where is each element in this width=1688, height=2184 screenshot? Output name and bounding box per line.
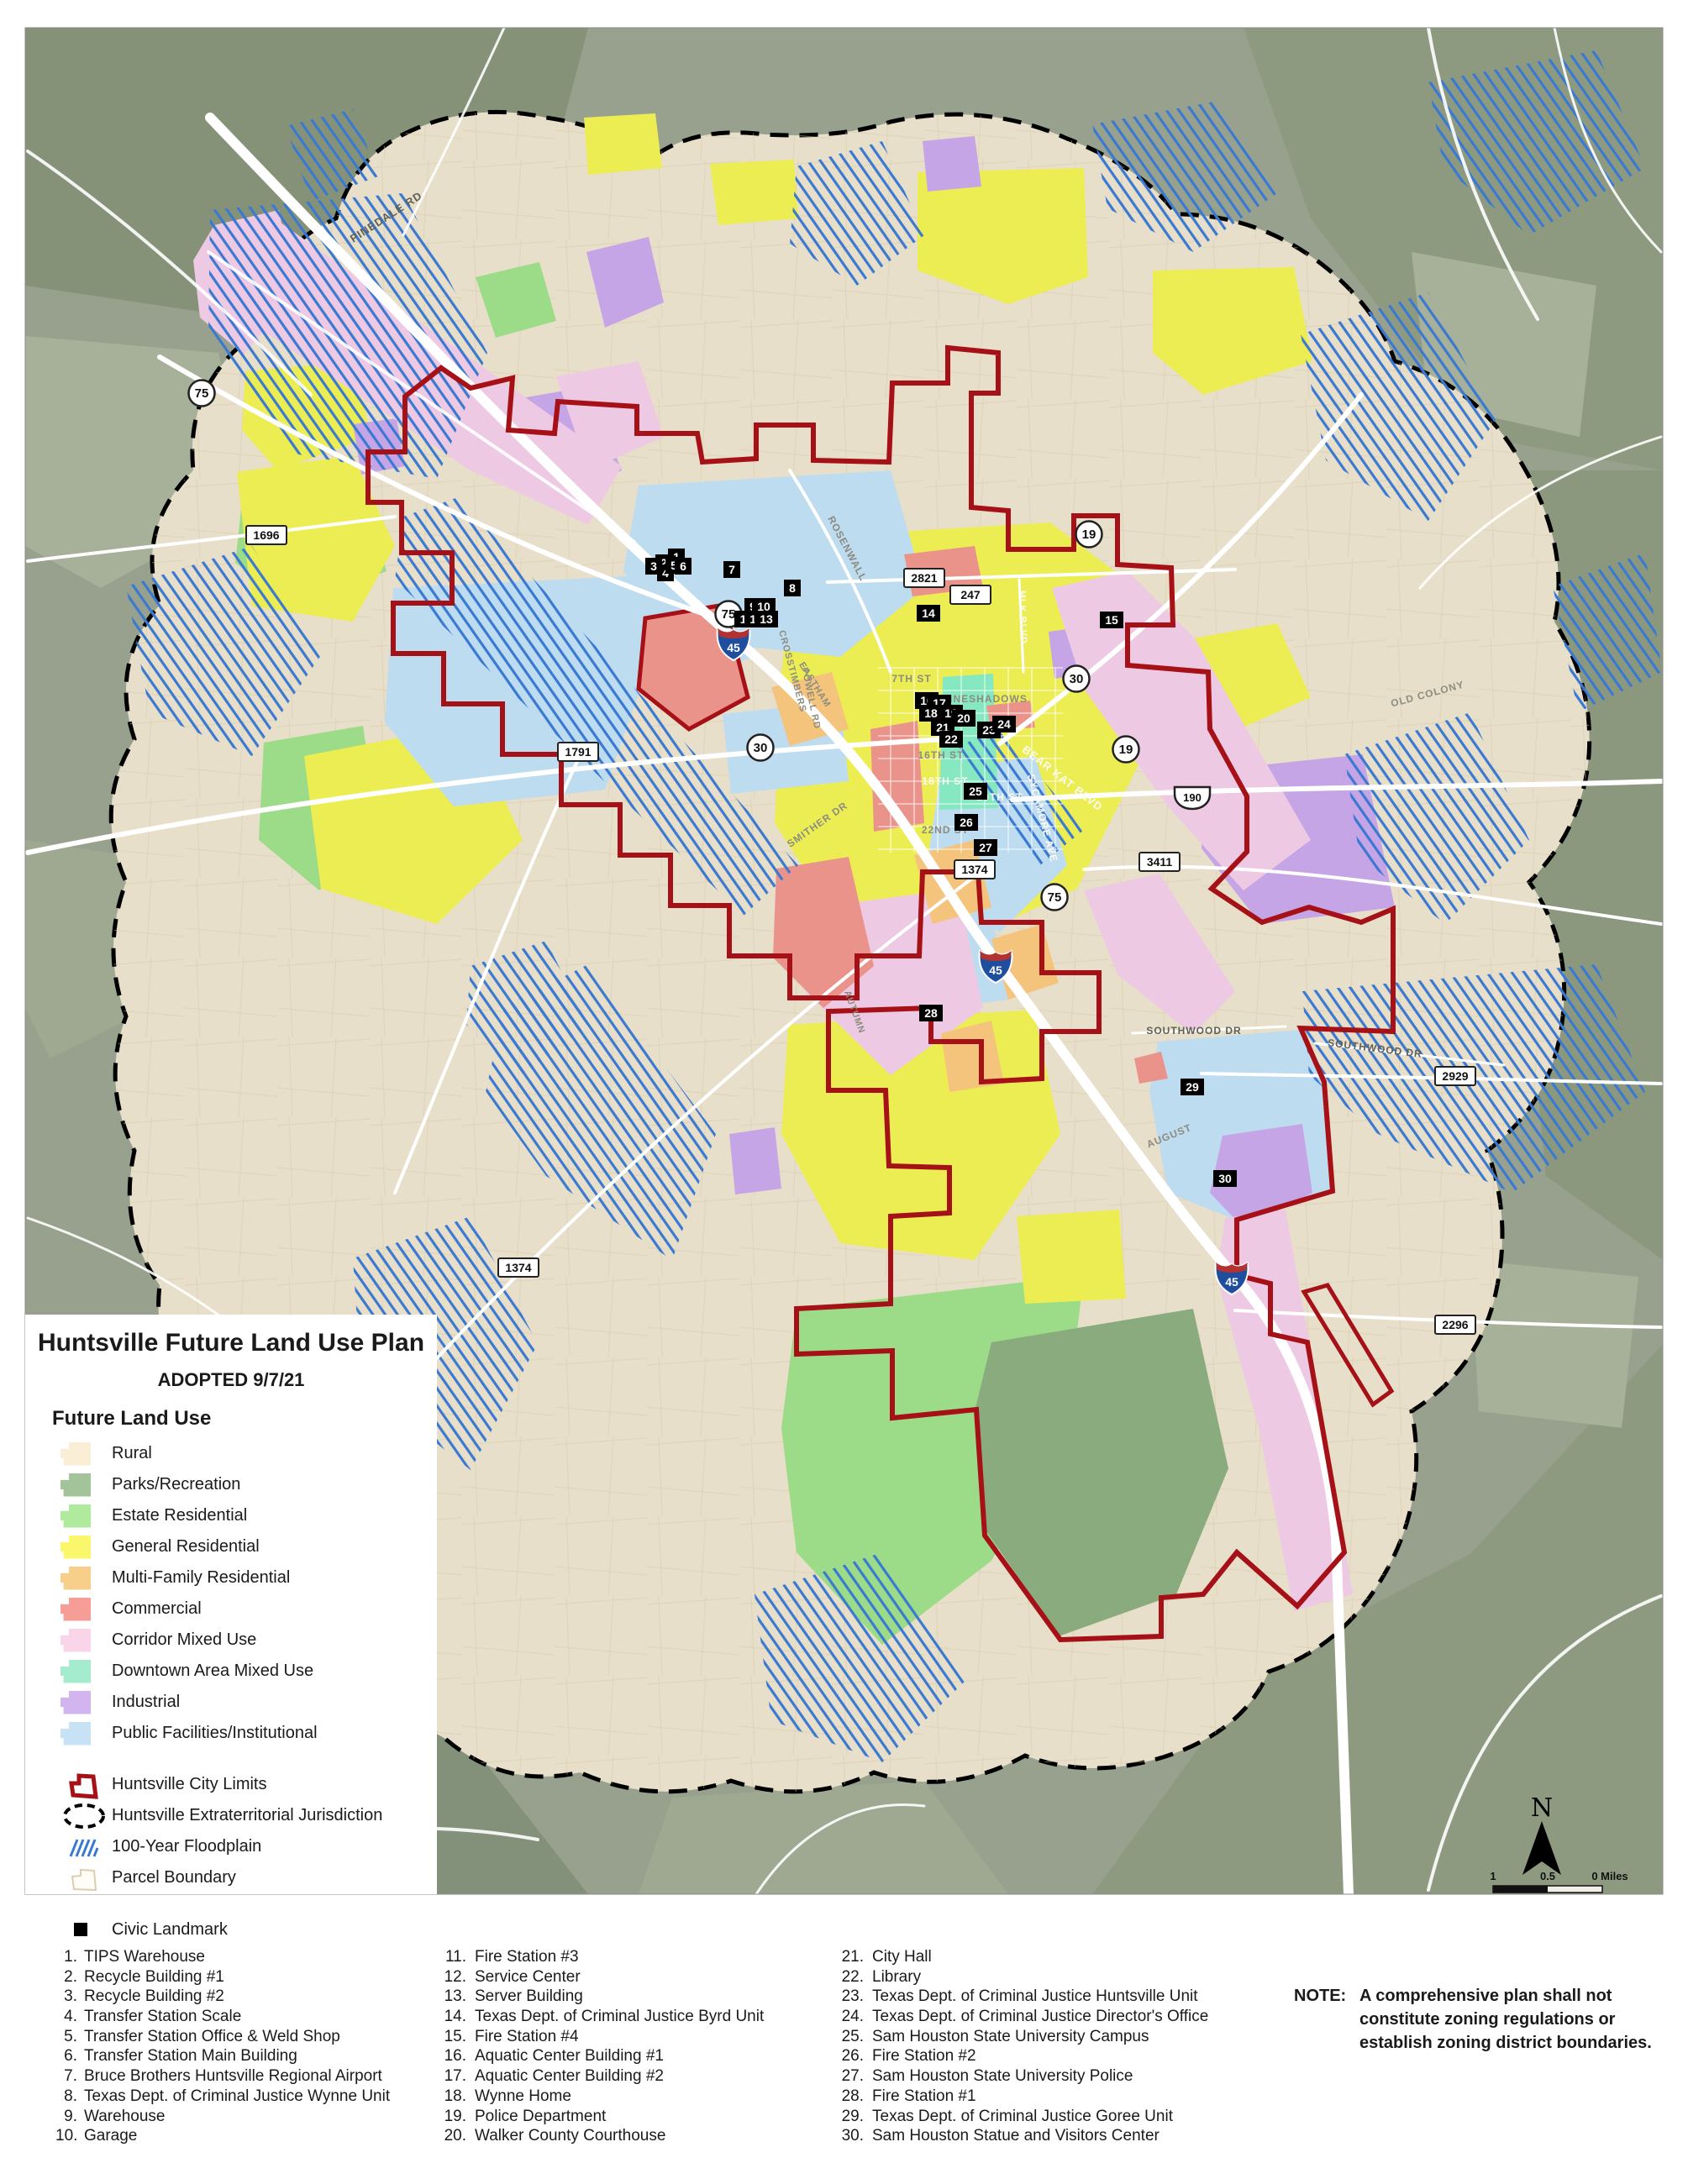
land-use-swatch	[60, 1567, 91, 1590]
map-marker-29: 29	[1181, 1079, 1204, 1095]
legend-item: Commercial	[25, 1593, 429, 1625]
landmark-list-item: 9.Warehouse	[55, 2107, 390, 2127]
land-use-swatch	[60, 1722, 91, 1746]
landmark-list-column-1: 1.TIPS Warehouse2.Recycle Building #13.R…	[55, 1947, 390, 2146]
svg-text:30: 30	[1218, 1172, 1232, 1185]
land-use-label: Industrial	[112, 1693, 180, 1712]
scale-label-0-miles: 0 Miles	[1591, 1870, 1628, 1882]
map-marker-27: 27	[974, 839, 997, 856]
landmark-list-item: 5.Transfer Station Office & Weld Shop	[55, 2027, 390, 2047]
landmark-label: Aquatic Center Building #2	[475, 2066, 664, 2087]
landmark-number: 20.	[441, 2126, 466, 2146]
landmark-label: Garage	[84, 2126, 137, 2146]
floodplain-icon	[55, 1835, 112, 1860]
landmark-number: 18.	[441, 2087, 466, 2107]
landmark-label: Police Department	[475, 2107, 606, 2127]
landmark-number: 24.	[839, 2007, 864, 2027]
civic-landmark-icon	[74, 1923, 87, 1936]
city-limits-icon	[55, 1769, 112, 1801]
svg-text:45: 45	[1225, 1275, 1238, 1289]
svg-text:24: 24	[997, 717, 1011, 731]
map-marker-13: 13	[755, 611, 778, 627]
landmark-list-item: 12.Service Center	[441, 1967, 764, 1987]
land-use-label: Corridor Mixed Use	[112, 1630, 256, 1650]
highway-shield-19: 19	[1113, 737, 1139, 763]
landmark-label: Texas Dept. of Criminal Justice Goree Un…	[872, 2107, 1173, 2127]
landmark-label: Warehouse	[84, 2107, 165, 2127]
landmark-label: Recycle Building #1	[84, 1967, 224, 1987]
landmark-label: Fire Station #3	[475, 1947, 579, 1967]
landmark-label: Transfer Station Office & Weld Shop	[84, 2027, 340, 2047]
landmark-list-column-3: 21.City Hall22.Library23.Texas Dept. of …	[839, 1947, 1208, 2146]
highway-shield-3411: 3411	[1139, 853, 1180, 871]
landmark-label: Texas Dept. of Criminal Justice Wynne Un…	[84, 2087, 390, 2107]
legend-floodplain: 100-Year Floodplain	[25, 1831, 429, 1862]
svg-text:1696: 1696	[253, 528, 279, 542]
landmark-number: 17.	[441, 2066, 466, 2087]
landmark-number: 1.	[55, 1947, 77, 1967]
landmark-label: Server Building	[475, 1987, 583, 2007]
legend-item: General Residential	[25, 1531, 429, 1562]
boundary-legend: Huntsville City Limits Huntsville Extrat…	[25, 1769, 429, 1893]
landmark-label: Wynne Home	[475, 2087, 571, 2107]
landmark-list-item: 15.Fire Station #4	[441, 2027, 764, 2047]
svg-text:13: 13	[760, 612, 773, 626]
highway-shield-1374: 1374	[498, 1258, 539, 1277]
parcel-boundary-label: Parcel Boundary	[112, 1868, 236, 1887]
landmark-list-column-2: 11.Fire Station #312.Service Center13.Se…	[441, 1947, 764, 2146]
note-prefix: NOTE:	[1294, 1984, 1359, 2055]
svg-text:14: 14	[922, 606, 935, 620]
landmark-number: 9.	[55, 2107, 77, 2127]
landmark-number: 11.	[441, 1947, 466, 1967]
landmark-number: 29.	[839, 2107, 864, 2127]
svg-text:75: 75	[722, 607, 736, 622]
svg-text:190: 190	[1183, 791, 1202, 804]
landmark-list-item: 26.Fire Station #2	[839, 2046, 1208, 2066]
north-label: N	[1531, 1793, 1553, 1823]
street-label: 7TH ST	[891, 673, 931, 685]
svg-text:2296: 2296	[1442, 1318, 1468, 1331]
svg-text:247: 247	[960, 588, 981, 601]
svg-text:1374: 1374	[505, 1261, 531, 1274]
land-use-label: Rural	[112, 1444, 152, 1463]
street-label: MLK BLVD	[1017, 591, 1028, 644]
land-use-label: Public Facilities/Institutional	[112, 1724, 318, 1743]
legend-item: Corridor Mixed Use	[25, 1625, 429, 1656]
landmark-list-item: 14.Texas Dept. of Criminal Justice Byrd …	[441, 2007, 764, 2027]
landmark-number: 16.	[441, 2046, 466, 2066]
huntsville-land-use-map-page: { "title": "Huntsville Future Land Use P…	[0, 0, 1688, 2184]
map-marker-8: 8	[784, 580, 801, 596]
land-use-label: General Residential	[112, 1537, 260, 1557]
map-marker-6: 6	[675, 558, 692, 575]
map-marker-14: 14	[917, 605, 940, 622]
highway-shield-30: 30	[1064, 666, 1090, 692]
land-use-label: Commercial	[112, 1599, 202, 1619]
legend-item: Public Facilities/Institutional	[25, 1718, 429, 1749]
landmark-list-item: 19.Police Department	[441, 2107, 764, 2127]
svg-text:19: 19	[1082, 528, 1096, 542]
landmark-list-item: 24.Texas Dept. of Criminal Justice Direc…	[839, 2007, 1208, 2027]
landmark-label: Transfer Station Scale	[84, 2007, 241, 2027]
landmark-list-item: 28.Fire Station #1	[839, 2087, 1208, 2107]
note: NOTE: A comprehensive plan shall not con…	[1294, 1984, 1652, 2055]
landmark-number: 23.	[839, 1987, 864, 2007]
land-use-label: Downtown Area Mixed Use	[112, 1662, 313, 1681]
landmark-label: City Hall	[872, 1947, 932, 1967]
highway-shield-19: 19	[1076, 522, 1102, 548]
land-use-swatch	[60, 1691, 91, 1714]
landmark-number: 27.	[839, 2066, 864, 2087]
landmark-number: 25.	[839, 2027, 864, 2047]
svg-text:3: 3	[650, 559, 657, 573]
scale-label-05: 0.5	[1540, 1870, 1555, 1882]
landmark-number: 14.	[441, 2007, 466, 2027]
highway-shield-247: 247	[950, 585, 991, 604]
landmark-list-item: 6.Transfer Station Main Building	[55, 2046, 390, 2066]
scale-label-1: 1	[1490, 1870, 1496, 1882]
landmark-list-item: 1.TIPS Warehouse	[55, 1947, 390, 1967]
adopted-date: ADOPTED 9/7/21	[25, 1369, 437, 1391]
landmark-list-item: 21.City Hall	[839, 1947, 1208, 1967]
landmark-label: Fire Station #4	[475, 2027, 579, 2047]
map-marker-30: 30	[1213, 1170, 1237, 1187]
landmark-list-item: 27.Sam Houston State University Police	[839, 2066, 1208, 2087]
land-use-legend-header: Future Land Use	[52, 1407, 211, 1431]
landmark-label: Transfer Station Main Building	[84, 2046, 297, 2066]
svg-text:18: 18	[924, 706, 938, 720]
svg-text:2821: 2821	[911, 571, 937, 585]
svg-text:1374: 1374	[961, 863, 987, 876]
landmark-list-item: 3.Recycle Building #2	[55, 1987, 390, 2007]
landmark-number: 30.	[839, 2126, 864, 2146]
svg-text:2929: 2929	[1442, 1069, 1468, 1083]
land-use-swatch	[60, 1598, 91, 1621]
landmark-label: Texas Dept. of Criminal Justice Director…	[872, 2007, 1208, 2027]
landmark-label: Walker County Courthouse	[475, 2126, 665, 2146]
svg-text:19: 19	[1119, 743, 1133, 757]
svg-text:30: 30	[754, 741, 768, 755]
land-use-label: Multi-Family Residential	[112, 1568, 290, 1588]
svg-text:1791: 1791	[565, 745, 591, 759]
landmark-list-item: 20.Walker County Courthouse	[441, 2126, 764, 2146]
landmark-number: 22.	[839, 1967, 864, 1987]
landmark-list-item: 7.Bruce Brothers Huntsville Regional Air…	[55, 2066, 390, 2087]
highway-shield-30: 30	[748, 735, 774, 761]
landmark-list-item: 10.Garage	[55, 2126, 390, 2146]
svg-text:45: 45	[727, 641, 740, 654]
street-label: 18TH ST	[922, 775, 968, 787]
landmark-label: Bruce Brothers Huntsville Regional Airpo…	[84, 2066, 382, 2087]
landmark-label: Sam Houston State University Police	[872, 2066, 1133, 2087]
land-use-list: RuralParks/RecreationEstate ResidentialG…	[25, 1438, 429, 1749]
landmark-label: Texas Dept. of Criminal Justice Huntsvil…	[872, 1987, 1198, 2007]
note-text: A comprehensive plan shall not constitut…	[1359, 1984, 1652, 2055]
highway-shield-190: 190	[1175, 787, 1210, 809]
svg-text:29: 29	[1186, 1080, 1199, 1094]
land-use-label: Parks/Recreation	[112, 1475, 240, 1494]
landmark-number: 28.	[839, 2087, 864, 2107]
map-marker-15: 15	[1100, 612, 1123, 628]
map-marker-25: 25	[964, 783, 987, 800]
landmark-list-item: 13.Server Building	[441, 1987, 764, 2007]
street-label: 16TH ST	[918, 749, 964, 761]
landmark-list-item: 30.Sam Houston Statue and Visitors Cente…	[839, 2126, 1208, 2146]
landmark-number: 4.	[55, 2007, 77, 2027]
landmark-label: Fire Station #1	[872, 2087, 976, 2107]
map-marker-20: 20	[952, 710, 975, 727]
landmark-list-item: 8.Texas Dept. of Criminal Justice Wynne …	[55, 2087, 390, 2107]
legend-parcel-boundary: Parcel Boundary	[25, 1862, 429, 1893]
landmark-list-item: 16.Aquatic Center Building #1	[441, 2046, 764, 2066]
landmark-number: 21.	[839, 1947, 864, 1967]
highway-shield-2296: 2296	[1435, 1315, 1475, 1334]
land-use-swatch	[60, 1660, 91, 1683]
legend-item: Downtown Area Mixed Use	[25, 1656, 429, 1687]
landmark-number: 5.	[55, 2027, 77, 2047]
landmark-label: Library	[872, 1967, 921, 1987]
landmark-list-item: 11.Fire Station #3	[441, 1947, 764, 1967]
highway-shield-1374: 1374	[954, 860, 995, 879]
map-marker-24: 24	[992, 716, 1016, 732]
highway-shield-1791: 1791	[558, 743, 598, 761]
landmark-list-item: 22.Library	[839, 1967, 1208, 1987]
svg-text:30: 30	[1070, 672, 1084, 686]
land-use-swatch	[60, 1473, 91, 1497]
landmark-list-item: 18.Wynne Home	[441, 2087, 764, 2107]
map-marker-28: 28	[919, 1005, 943, 1021]
svg-text:26: 26	[960, 816, 973, 829]
svg-text:6: 6	[680, 559, 686, 573]
highway-shield-1696: 1696	[246, 526, 287, 544]
landmark-number: 3.	[55, 1987, 77, 2007]
svg-text:3411: 3411	[1147, 855, 1173, 869]
landmark-list-item: 17.Aquatic Center Building #2	[441, 2066, 764, 2087]
landmark-number: 8.	[55, 2087, 77, 2107]
legend-item: Parks/Recreation	[25, 1469, 429, 1500]
svg-text:75: 75	[1048, 890, 1062, 905]
svg-text:45: 45	[989, 963, 1002, 977]
landmark-number: 13.	[441, 1987, 466, 2007]
landmark-label: Aquatic Center Building #1	[475, 2046, 664, 2066]
legend-item: Rural	[25, 1438, 429, 1469]
civic-landmark-label: Civic Landmark	[112, 1920, 228, 1940]
svg-text:15: 15	[1105, 613, 1118, 627]
landmark-list-item: 4.Transfer Station Scale	[55, 2007, 390, 2027]
landmark-label: Recycle Building #2	[84, 1987, 224, 2007]
landmark-number: 2.	[55, 1967, 77, 1987]
highway-shield-75: 75	[189, 381, 215, 407]
svg-text:7: 7	[728, 563, 735, 576]
landmark-number: 6.	[55, 2046, 77, 2066]
highway-shield-2929: 2929	[1435, 1067, 1475, 1085]
map-marker-7: 7	[723, 561, 740, 578]
landmark-number: 12.	[441, 1967, 466, 1987]
legend-item: Industrial	[25, 1687, 429, 1718]
land-use-swatch	[60, 1629, 91, 1652]
legend-etj: Huntsville Extraterritorial Jurisdiction	[25, 1800, 429, 1831]
highway-shield-2821: 2821	[904, 569, 944, 587]
landmark-label: Fire Station #2	[872, 2046, 976, 2066]
land-use-swatch	[60, 1504, 91, 1528]
landmark-number: 10.	[55, 2126, 77, 2146]
land-use-swatch	[60, 1536, 91, 1559]
legend-city-limits: Huntsville City Limits	[25, 1769, 429, 1800]
street-label: SOUTHWOOD DR	[1146, 1025, 1241, 1037]
legend-civic-landmark: Civic Landmark	[25, 1917, 228, 1942]
landmark-list-item: 23.Texas Dept. of Criminal Justice Hunts…	[839, 1987, 1208, 2007]
etj-label: Huntsville Extraterritorial Jurisdiction	[112, 1806, 382, 1825]
floodplain-label: 100-Year Floodplain	[112, 1837, 261, 1856]
land-use-label: Estate Residential	[112, 1506, 247, 1525]
city-limits-label: Huntsville City Limits	[112, 1775, 266, 1794]
landmark-list-item: 25.Sam Houston State University Campus	[839, 2027, 1208, 2047]
landmark-number: 26.	[839, 2046, 864, 2066]
svg-text:75: 75	[195, 386, 209, 401]
street-label: PINESHADOWS	[942, 693, 1028, 705]
map-marker-22: 22	[939, 731, 963, 748]
map-marker-26: 26	[954, 814, 978, 831]
landmark-list-item: 2.Recycle Building #1	[55, 1967, 390, 1987]
landmark-label: TIPS Warehouse	[84, 1947, 205, 1967]
landmark-label: Sam Houston Statue and Visitors Center	[872, 2126, 1160, 2146]
etj-icon	[55, 1801, 112, 1831]
legend-item: Multi-Family Residential	[25, 1562, 429, 1593]
svg-text:22: 22	[944, 732, 958, 746]
legend-item: Estate Residential	[25, 1500, 429, 1531]
highway-shield-75: 75	[1042, 885, 1068, 911]
landmark-number: 19.	[441, 2107, 466, 2127]
svg-text:20: 20	[957, 711, 970, 725]
landmark-label: Service Center	[475, 1967, 581, 1987]
svg-text:25: 25	[969, 785, 982, 798]
landmark-label: Sam Houston State University Campus	[872, 2027, 1149, 2047]
svg-text:27: 27	[979, 841, 992, 854]
landmark-number: 7.	[55, 2066, 77, 2087]
parcel-boundary-icon	[55, 1863, 112, 1893]
page-title: Huntsville Future Land Use Plan	[25, 1329, 437, 1357]
svg-text:28: 28	[924, 1006, 938, 1020]
landmark-label: Texas Dept. of Criminal Justice Byrd Uni…	[475, 2007, 764, 2027]
svg-text:8: 8	[789, 581, 796, 595]
landmark-list-item: 29.Texas Dept. of Criminal Justice Goree…	[839, 2107, 1208, 2127]
land-use-swatch	[60, 1442, 91, 1466]
landmark-number: 15.	[441, 2027, 466, 2047]
